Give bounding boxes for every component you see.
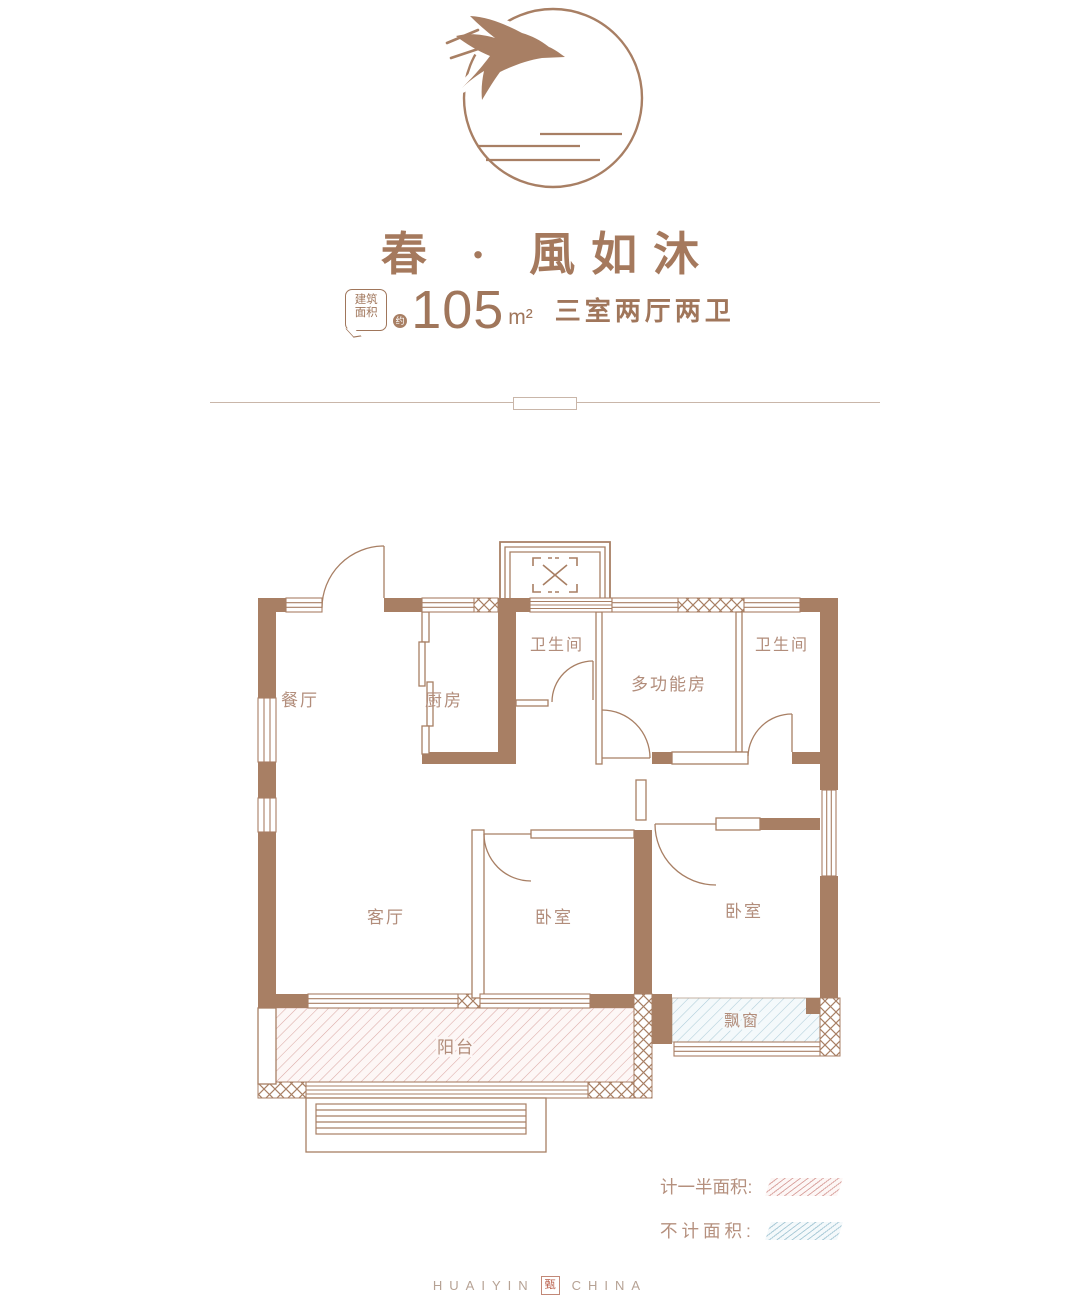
legend-half-swatch	[765, 1178, 843, 1196]
legend-row-none: 不计面积:	[660, 1218, 920, 1243]
room-label-bedroom2: 卧室	[725, 902, 763, 921]
legend-row-half: 计一半面积:	[660, 1174, 920, 1199]
page-title: 春 · 風如沐	[0, 218, 1080, 284]
room-label-balcony: 阳台	[437, 1038, 475, 1057]
room-label-baywindow: 飘窗	[724, 1012, 760, 1030]
room-label-dining: 餐厅	[281, 691, 319, 710]
swallow-logo-svg	[0, 0, 1080, 200]
legend-none-label: 不计面积:	[660, 1218, 760, 1243]
area-badge-line2: 面积	[346, 307, 386, 320]
legend-none-swatch	[765, 1222, 843, 1240]
area-spec-row: 建筑 面积 约 105 m² 三室两厅两卫	[0, 286, 1080, 334]
legend-half-label: 计一半面积:	[660, 1174, 760, 1199]
bedroom1-door	[484, 834, 531, 881]
elevator-shaft	[500, 542, 610, 598]
area-unit: m²	[508, 306, 533, 330]
room-label-kitchen: 厨房	[425, 691, 463, 710]
brand-seal-icon: 甄	[541, 1276, 560, 1295]
area-badge-line1: 建筑	[346, 294, 386, 307]
area-value: 105	[411, 286, 504, 334]
ac-platform	[306, 1098, 546, 1152]
entry-door	[322, 546, 384, 608]
divider-pill	[513, 397, 577, 410]
room-label-living: 客厅	[367, 908, 405, 927]
bedroom2-door	[655, 824, 716, 885]
brand-logo	[0, 0, 1080, 200]
elevator-icon	[533, 558, 577, 592]
brand-right: CHINA	[572, 1278, 647, 1293]
swallow-icon	[447, 16, 565, 100]
layout-desc: 三室两厅两卫	[555, 291, 735, 328]
footer-brand: HUAIYIN 甄 CHINA	[0, 1276, 1080, 1295]
bath1-door	[552, 661, 593, 702]
approx-mark: 约	[393, 314, 407, 328]
floorplan-poster: { "header": { "title": "春 · 風如沐", "badge…	[0, 0, 1080, 1311]
room-label-bath2: 卫生间	[755, 636, 809, 654]
room-label-bedroom1: 卧室	[535, 908, 573, 927]
section-divider	[210, 402, 880, 403]
room-label-bath1: 卫生间	[530, 636, 584, 654]
area-badge: 建筑 面积	[345, 289, 387, 331]
multi-room-door	[602, 710, 650, 758]
legend: 计一半面积: 不计面积:	[660, 1174, 920, 1262]
water-lines-icon	[477, 134, 622, 160]
floorplan-svg: 餐厅 厨房 卫生间 多功能房 卫生间 客厅 卧室 卧室 阳台 飘窗	[240, 528, 860, 1168]
floorplan: 餐厅 厨房 卫生间 多功能房 卫生间 客厅 卧室 卧室 阳台 飘窗	[240, 528, 860, 1168]
brand-left: HUAIYIN	[433, 1278, 535, 1293]
bath2-door	[748, 714, 792, 756]
room-label-multi: 多功能房	[631, 675, 707, 694]
